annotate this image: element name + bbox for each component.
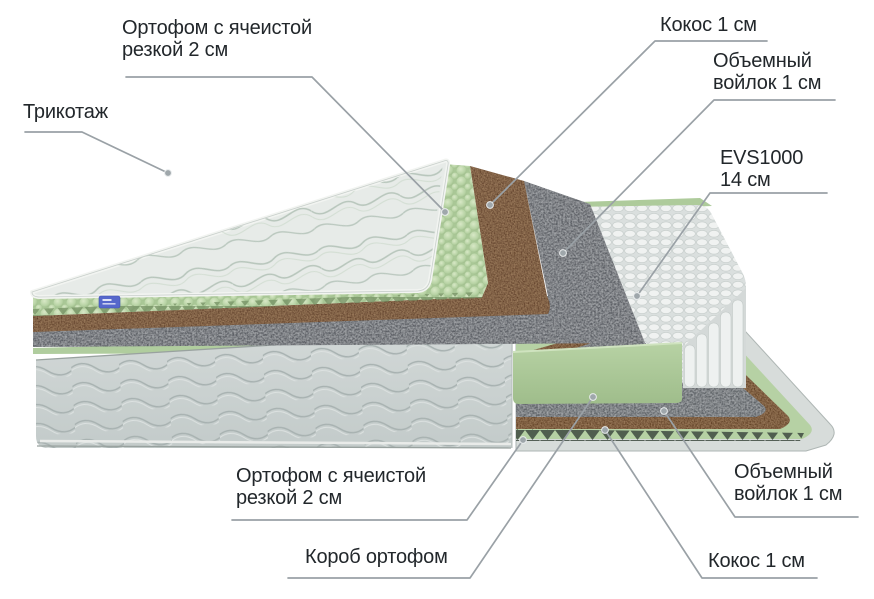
label-ortofom-top-line2: резкой 2 см [122, 40, 312, 62]
label-ortofom-top: Ортофом с ячеистой резкой 2 см [122, 18, 312, 61]
label-kokos-top-line1: Кокос 1 см [660, 15, 757, 37]
dot-korob [590, 394, 597, 401]
brand-tag [99, 296, 120, 308]
label-trikotazh-line1: Трикотаж [23, 102, 108, 124]
dot-evs [634, 293, 641, 300]
mattress-diagram: Ортофом с ячеистой резкой 2 см Трикотаж … [0, 0, 874, 599]
label-voilok-top-line2: войлок 1 см [713, 73, 821, 95]
dot-voilok-top [560, 250, 567, 257]
upper-layers [32, 161, 645, 348]
leader-trikotazh [25, 132, 168, 173]
dot-kokos-top [487, 202, 494, 209]
label-voilok-bottom-line1: Объемный [734, 462, 842, 484]
layer-quilted-top-pattern [34, 163, 443, 295]
label-evs: EVS1000 14 см [720, 148, 803, 191]
label-evs-line1: EVS1000 [720, 148, 803, 170]
label-voilok-top-line1: Объемный [713, 51, 821, 73]
label-kokos-bottom: Кокос 1 см [708, 551, 805, 573]
mattress-base-box [33, 330, 513, 448]
label-voilok-top: Объемный войлок 1 см [713, 51, 821, 94]
label-ortofom-bottom-line1: Ортофом с ячеистой [236, 466, 426, 488]
dot-ortofom-bottom [520, 437, 527, 444]
label-evs-line2: 14 см [720, 170, 803, 192]
label-korob-line1: Короб ортофом [305, 547, 448, 569]
label-ortofom-bottom-line2: резкой 2 см [236, 488, 426, 510]
dot-kokos-bottom [602, 427, 609, 434]
label-ortofom-top-line1: Ортофом с ячеистой [122, 18, 312, 40]
label-kokos-top: Кокос 1 см [660, 15, 757, 37]
label-kokos-bottom-line1: Кокос 1 см [708, 551, 805, 573]
dot-trikotazh [165, 170, 172, 177]
label-trikotazh: Трикотаж [23, 102, 108, 124]
label-korob: Короб ортофом [305, 547, 448, 569]
label-ortofom-bottom: Ортофом с ячеистой резкой 2 см [236, 466, 426, 509]
label-voilok-bottom: Объемный войлок 1 см [734, 462, 842, 505]
layer-korob-foam-face [513, 343, 682, 404]
dot-voilok-bottom [661, 408, 668, 415]
label-voilok-bottom-line2: войлок 1 см [734, 484, 842, 506]
dot-ortofom-top [442, 209, 449, 216]
